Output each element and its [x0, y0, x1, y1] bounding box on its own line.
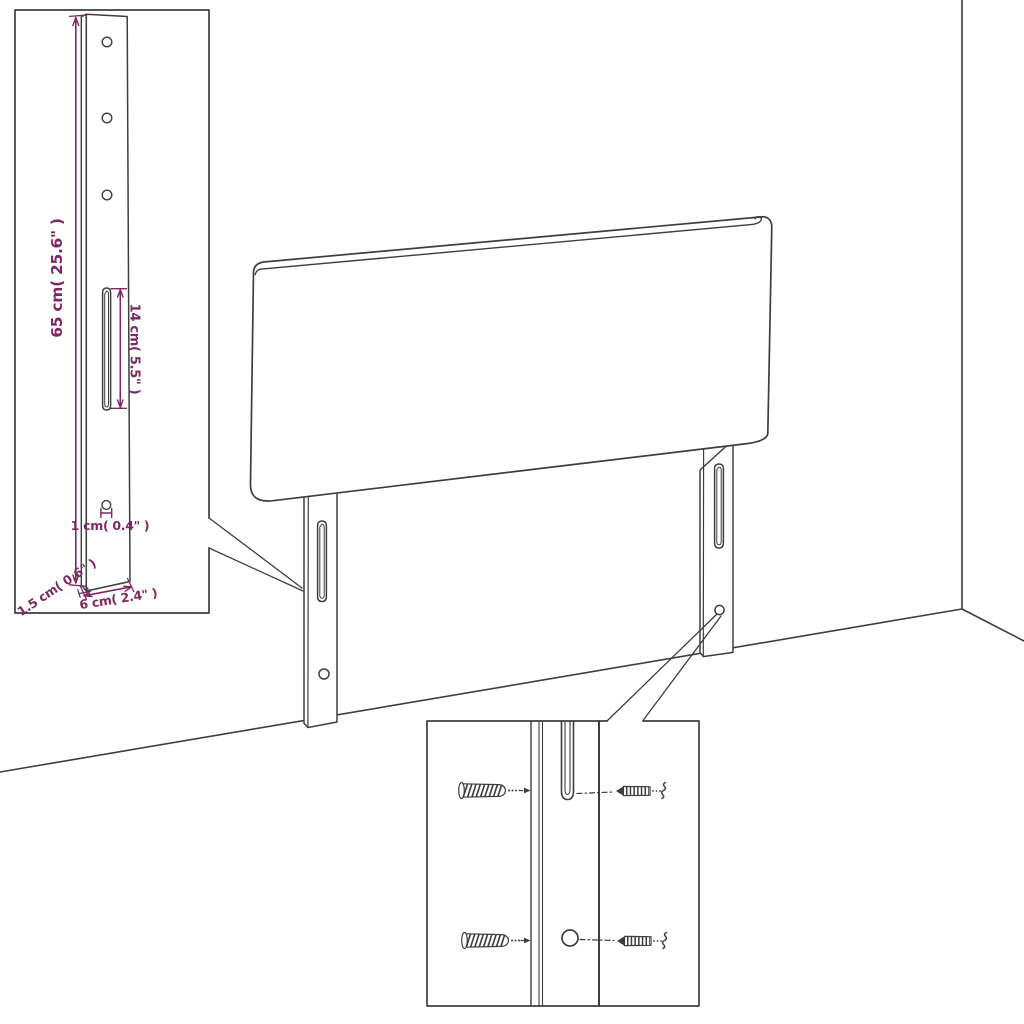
plug-guide-arrow-bottom: [524, 938, 531, 944]
floor-line-right: [962, 609, 1024, 641]
mounting-detail-inset: [427, 721, 699, 1006]
bracket-detail-inset: 65 cm( 25.6" ) 14 cm( 5.5" ) 1 cm( 0.4" …: [14, 10, 209, 619]
screw-turn-squiggle: [662, 783, 666, 799]
closeup-slot-inner: [565, 721, 570, 795]
screw-guide-bottom: [580, 940, 614, 941]
diagram-stage: 65 cm( 25.6" ) 14 cm( 5.5" ) 1 cm( 0.4" …: [0, 0, 1024, 1024]
screw-guide-top: [577, 792, 613, 794]
headboard-right-leg: [700, 440, 733, 657]
screw-icon-bottom: [617, 933, 667, 949]
mounting-inset-border: [427, 721, 699, 1006]
dimension-slot-label: 14 cm( 5.5" ): [127, 304, 142, 395]
dimension-height-label: 65 cm( 25.6" ): [48, 218, 66, 337]
floor-line-left: [0, 609, 962, 772]
hole-callout-line-right: [643, 616, 721, 721]
bracket-callout-line-top: [209, 518, 302, 588]
plug-guide-arrow-top: [524, 788, 531, 794]
bracket-callout-line-bottom: [209, 548, 303, 591]
headboard-front-face: [250, 217, 771, 501]
hole-callout-line-left: [607, 614, 717, 721]
headboard-left-leg: [304, 485, 337, 728]
dimension-height: 65 cm( 25.6" ): [48, 15, 85, 586]
closeup-hole: [562, 930, 578, 946]
bracket-callout-lines: [209, 518, 303, 591]
closeup-slot: [562, 721, 574, 800]
headboard-panel: [250, 217, 771, 501]
wall-plug-icon-top: [459, 783, 517, 799]
screw-icon-top: [616, 783, 666, 799]
dimension-hole-label: 1 cm( 0.4" ): [71, 518, 150, 533]
wall-plug-icon-bottom: [462, 933, 520, 949]
leg-closeup-strip: [531, 721, 599, 1006]
diagram-canvas: 65 cm( 25.6" ) 14 cm( 5.5" ) 1 cm( 0.4" …: [0, 0, 1024, 1024]
screw-turn-squiggle: [663, 933, 667, 949]
